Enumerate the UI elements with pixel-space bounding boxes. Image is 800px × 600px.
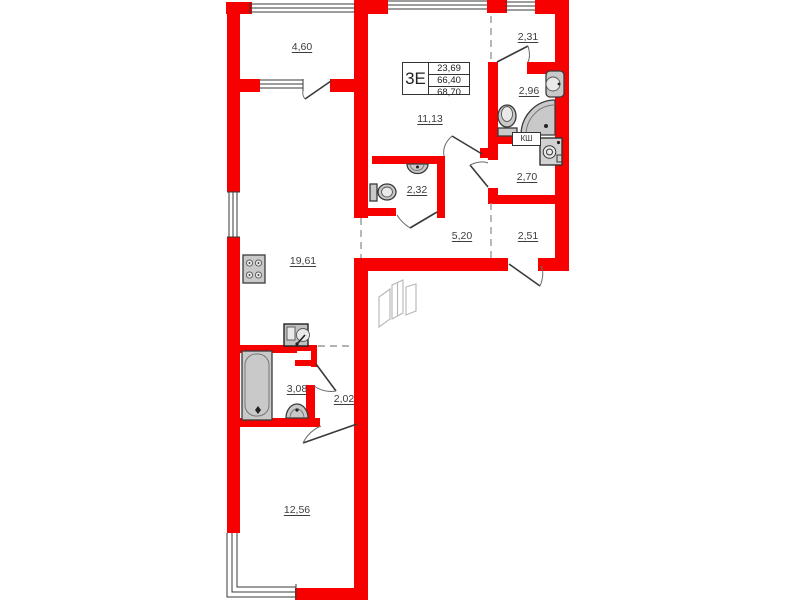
area-label-hall-2-51: 2,51	[518, 230, 538, 242]
window-top-room	[388, 1, 487, 9]
area-label-hallway-5-20: 5,20	[452, 230, 472, 242]
area-label-room-11-13: 11,13	[417, 113, 443, 125]
kitchen-sink-icon	[284, 324, 310, 346]
door-loggia	[303, 81, 331, 99]
closet-box-label: КШ	[512, 132, 541, 146]
bay-window-corner	[227, 533, 296, 599]
floor-plan: 4,60 11,13 2,31 2,96 2,70 2,32 5,20 2,51…	[0, 0, 800, 600]
floor-plan-drawing	[0, 0, 800, 600]
window-left-kitchen	[227, 192, 240, 237]
washing-machine-icon	[540, 138, 562, 165]
area-label-bedroom: 12,56	[284, 504, 310, 516]
window-loggia-inner	[260, 79, 303, 91]
area-label-closet-2-70: 2,70	[517, 171, 537, 183]
unit-stamp: 3Е 23,69 66,40 68,70	[402, 62, 470, 95]
wardrobe-sketch	[379, 280, 416, 327]
unit-area: 66,40	[429, 75, 469, 87]
unit-total-area: 68,70	[429, 87, 469, 98]
area-label-kitchen-living: 19,61	[290, 255, 316, 267]
door-room-to-hallway	[444, 136, 482, 156]
corner-shower-icon	[521, 100, 555, 135]
area-label-hall-2-02: 2,02	[334, 393, 354, 405]
area-label-wc: 2,32	[407, 184, 427, 196]
wc-sink-icon	[407, 164, 428, 174]
door-entrance	[509, 264, 543, 286]
unit-living-area: 23,69	[429, 63, 469, 75]
area-label-loggia: 4,60	[292, 41, 312, 53]
shower-sink-icon	[546, 71, 564, 97]
unit-type-label: 3Е	[403, 63, 429, 94]
door-wc	[397, 212, 437, 228]
door-hall-2-31	[497, 46, 530, 62]
bathroom-sink-icon	[286, 404, 308, 418]
area-label-bathroom: 3,08	[287, 383, 307, 395]
wc-toilet-icon	[370, 184, 396, 201]
stove-icon	[243, 255, 265, 283]
bathtub-icon	[242, 351, 272, 420]
door-bathroom	[314, 364, 336, 391]
door-closet-2-70	[470, 162, 488, 187]
area-label-hall-2-31: 2,31	[518, 31, 538, 43]
window-top-loggia	[250, 3, 355, 13]
window-top-hall	[505, 2, 535, 10]
area-label-shower-room: 2,96	[519, 85, 539, 97]
